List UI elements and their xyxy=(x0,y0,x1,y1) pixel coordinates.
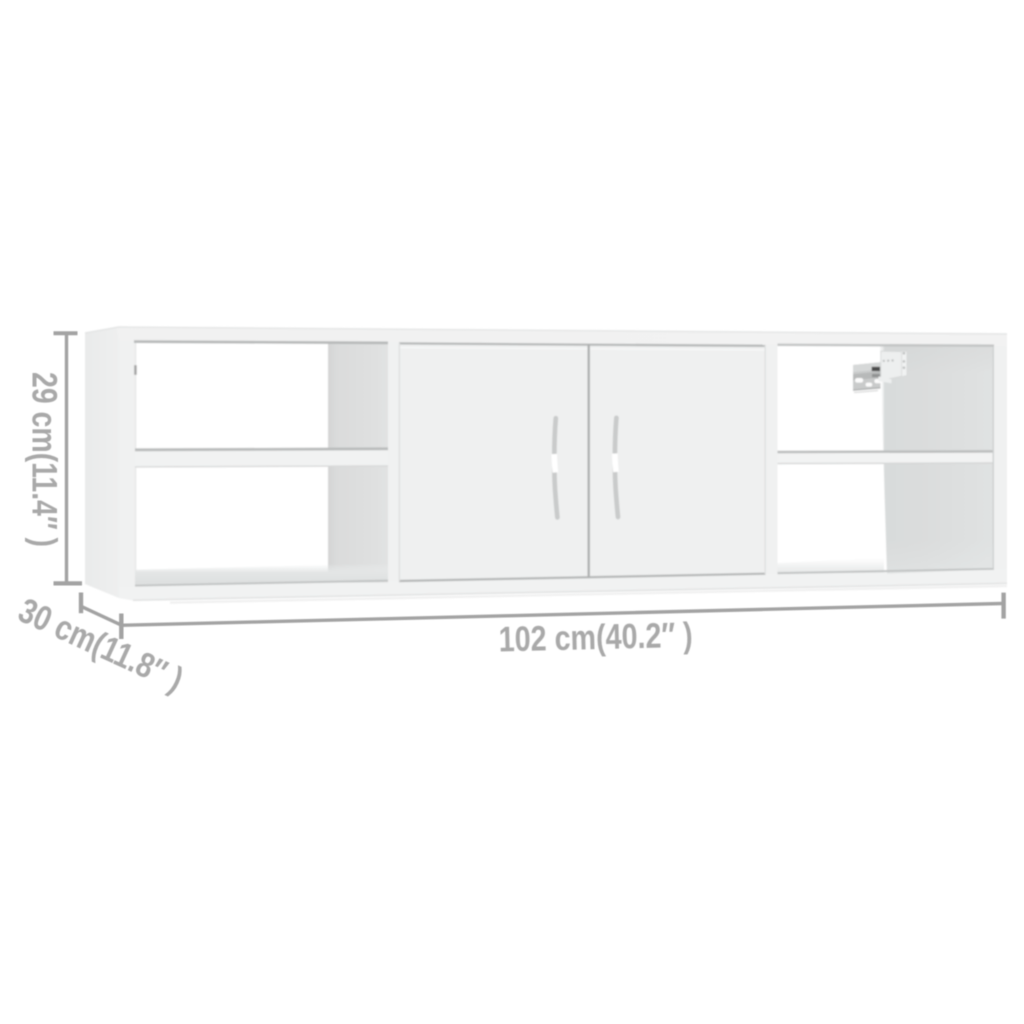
svg-text:29 cm(11.4″ ): 29 cm(11.4″ ) xyxy=(25,372,64,547)
svg-text:102 cm(40.2″ ): 102 cm(40.2″ ) xyxy=(498,616,693,660)
